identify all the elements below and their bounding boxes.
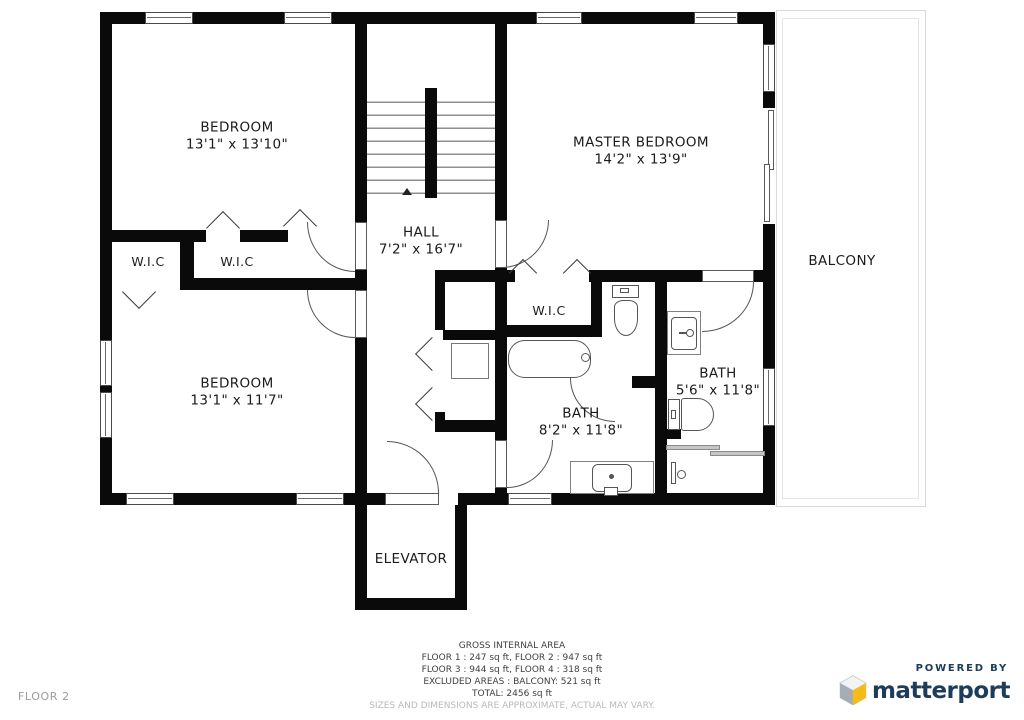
toilet-bowl: [614, 300, 638, 336]
window: [126, 493, 174, 505]
wall: [495, 12, 507, 220]
wall: [355, 12, 367, 222]
room-name: W.I.C: [220, 254, 253, 271]
toilet-button: [671, 410, 676, 419]
room-label-wic-master: W.I.C: [532, 303, 565, 320]
room-name: BEDROOM: [186, 120, 288, 137]
matterport-logo: POWERED BY matterport: [838, 663, 1010, 707]
room-label-bedroom-bottom-left: BEDROOM 13'1" x 11'7": [190, 376, 283, 409]
wall: [443, 330, 507, 340]
shower-door-track: [666, 445, 720, 450]
room-dimensions: 13'1" x 11'7": [190, 392, 283, 409]
elevator-wall: [355, 598, 467, 610]
toilet-button: [620, 288, 629, 293]
staircase-flight: [437, 90, 495, 198]
wall: [495, 268, 507, 442]
door-swing-arc: [387, 441, 439, 493]
window: [145, 12, 193, 24]
staircase-divider-wall: [425, 88, 437, 198]
room-name: BATH: [539, 406, 623, 423]
room-label-elevator: ELEVATOR: [375, 551, 448, 568]
wall: [240, 230, 288, 242]
wall: [667, 429, 681, 439]
door-swing-arc: [507, 440, 553, 488]
faucet-knob: [686, 329, 694, 337]
powered-by-text: POWERED BY: [916, 663, 1008, 674]
window: [508, 493, 552, 505]
door-leaf: [385, 493, 439, 505]
room-label-hall: HALL 7'2" x 16'7": [379, 225, 463, 258]
closet-shelf: [451, 343, 489, 379]
room-name: W.I.C: [131, 254, 164, 271]
elevator-wall: [455, 505, 467, 610]
room-dimensions: 7'2" x 16'7": [379, 241, 463, 258]
wall: [507, 325, 602, 337]
window: [284, 12, 332, 24]
bifold-door-chevron: [415, 337, 449, 371]
window: [694, 12, 738, 24]
sliding-door-panel: [764, 164, 770, 222]
matterport-cube-icon: [838, 674, 868, 707]
room-name: BEDROOM: [190, 376, 283, 393]
door-swing-arc: [307, 290, 355, 338]
wall: [655, 282, 667, 493]
wall: [355, 270, 367, 290]
door-swing-arc: [307, 222, 355, 272]
sink-front-tab: [604, 487, 618, 496]
area-summary-line: FLOOR 3 : 944 sq ft, FLOOR 4 : 318 sq ft: [369, 664, 655, 676]
window: [763, 44, 775, 92]
floor-plan-page: BEDROOM 13'1" x 13'10" MASTER BEDROOM 14…: [0, 0, 1024, 720]
window: [100, 340, 112, 386]
room-label-wic-center: W.I.C: [220, 254, 253, 271]
stair-direction-arrow: [402, 188, 412, 195]
window: [100, 392, 112, 438]
window: [763, 368, 775, 426]
wall: [180, 278, 355, 290]
shower-valve-bar: [671, 462, 676, 484]
floor-label: FLOOR 2: [18, 690, 70, 703]
room-label-master-bedroom: MASTER BEDROOM 14'2" x 13'9": [573, 135, 709, 168]
wall: [443, 420, 507, 432]
area-summary: GROSS INTERNAL AREA FLOOR 1 : 247 sq ft,…: [369, 640, 655, 712]
room-label-bath-ensuite: BATH 5'6" x 11'8": [676, 366, 760, 399]
room-name: W.I.C: [532, 303, 565, 320]
wall: [100, 12, 775, 24]
bifold-door-chevron: [206, 211, 240, 245]
room-name: MASTER BEDROOM: [573, 135, 709, 152]
sink-drain: [609, 474, 614, 479]
bathtub-faucet: [581, 353, 590, 362]
room-name: HALL: [379, 225, 463, 242]
window: [296, 493, 344, 505]
bifold-door-chevron: [563, 259, 591, 287]
bifold-door-chevron: [122, 275, 156, 309]
room-dimensions: 13'1" x 13'10": [186, 136, 288, 153]
room-dimensions: 14'2" x 13'9": [573, 151, 709, 168]
wall: [435, 270, 507, 282]
bathtub: [508, 340, 591, 378]
room-label-bedroom-top-left: BEDROOM 13'1" x 13'10": [186, 120, 288, 153]
shower-door-track: [710, 451, 765, 456]
room-name: BALCONY: [808, 253, 875, 270]
door-leaf: [355, 222, 367, 270]
area-summary-disclaimer: SIZES AND DIMENSIONS ARE APPROXIMATE, AC…: [369, 700, 655, 712]
window: [536, 12, 582, 24]
matterport-wordmark: matterport: [872, 678, 1010, 704]
room-dimensions: 8'2" x 11'8": [539, 422, 623, 439]
room-label-bath-main: BATH 8'2" x 11'8": [539, 406, 623, 439]
wall: [495, 488, 507, 505]
wall: [589, 270, 702, 282]
room-label-balcony: BALCONY: [808, 253, 875, 270]
sliding-door-panel: [768, 110, 774, 170]
wall: [355, 338, 367, 610]
area-summary-line: EXCLUDED AREAS : BALCONY: 521 sq ft: [369, 676, 655, 688]
wall: [435, 282, 445, 330]
door-swing-arc: [702, 282, 754, 332]
room-label-wic-left: W.I.C: [131, 254, 164, 271]
toilet-bowl: [681, 398, 714, 431]
door-leaf: [355, 290, 367, 338]
shower-valve-knob: [677, 470, 686, 479]
area-summary-title: GROSS INTERNAL AREA: [369, 640, 655, 652]
room-name: BATH: [676, 366, 760, 383]
area-summary-line: TOTAL: 2456 sq ft: [369, 688, 655, 700]
staircase-flight: [367, 90, 425, 198]
area-summary-line: FLOOR 1 : 247 sq ft, FLOOR 2 : 947 sq ft: [369, 652, 655, 664]
room-name: ELEVATOR: [375, 551, 448, 568]
door-leaf: [495, 440, 507, 488]
room-dimensions: 5'6" x 11'8": [676, 382, 760, 399]
door-leaf: [702, 270, 754, 282]
